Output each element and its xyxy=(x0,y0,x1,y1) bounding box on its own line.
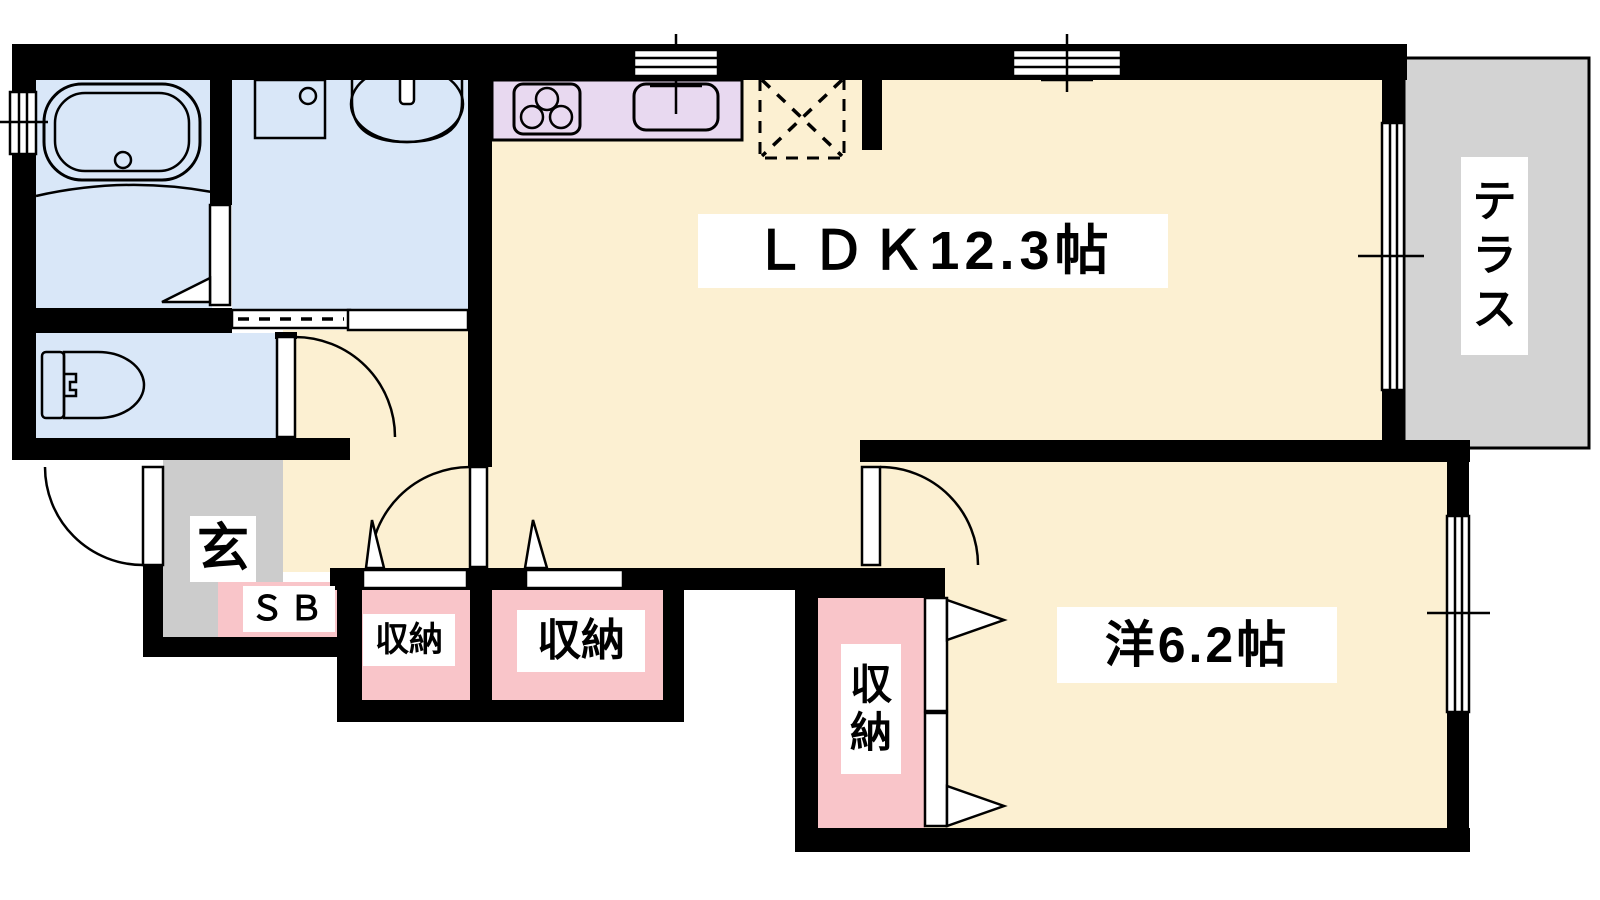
bedroom-door-leaf xyxy=(862,467,880,565)
floor-plan: ＬＤＫ12.3帖 洋6.2帖 テ ラ ス 玄 ＳＢ 収納 収納 収 納 xyxy=(0,0,1600,900)
room-label-ldk: ＬＤＫ12.3帖 xyxy=(698,214,1168,288)
entrance-door-leaf xyxy=(143,467,163,565)
room-washroom xyxy=(232,80,468,310)
floor-plan-drawing xyxy=(0,0,1600,900)
wall xyxy=(210,44,232,205)
storage-label-char: 収 xyxy=(850,664,892,706)
wall xyxy=(468,44,492,467)
wall xyxy=(337,700,684,722)
ldk-door-leaf xyxy=(470,467,487,567)
terrace-label-char: ラ xyxy=(1473,234,1517,278)
room-label-western: 洋6.2帖 xyxy=(1057,607,1337,683)
wall xyxy=(12,438,350,460)
closet-door-leaf xyxy=(363,570,467,588)
closet-door-leaf xyxy=(925,713,947,826)
wall xyxy=(12,308,232,333)
wall xyxy=(795,828,1470,852)
room-toilet xyxy=(36,333,277,438)
door-swing-icon xyxy=(45,467,143,565)
closet-door-leaf xyxy=(925,598,947,711)
room-label-storage-hall-large: 収納 xyxy=(517,610,645,672)
wall xyxy=(862,80,882,150)
wall xyxy=(143,637,362,657)
wall xyxy=(795,590,818,852)
room-label-terrace: テ ラ ス xyxy=(1461,157,1528,355)
terrace-label-char: ス xyxy=(1473,288,1517,332)
room-label-entrance: 玄 xyxy=(190,516,256,582)
room-bathroom xyxy=(36,80,212,308)
window-icon xyxy=(634,50,718,76)
room-label-storage-hall-small: 収納 xyxy=(363,614,455,666)
wall xyxy=(663,568,684,722)
wall xyxy=(470,568,492,722)
bath-door-leaf xyxy=(210,205,230,305)
sliding-door-icon xyxy=(348,310,468,330)
room-label-shoe-box: ＳＢ xyxy=(243,586,335,632)
wall xyxy=(860,440,1470,462)
wall xyxy=(337,568,362,722)
closet-door-leaf xyxy=(526,570,623,588)
terrace-label-char: テ xyxy=(1473,180,1517,224)
storage-label-char: 納 xyxy=(850,712,892,754)
toilet-door-leaf xyxy=(277,337,295,437)
room-label-storage-bedroom: 収 納 xyxy=(841,644,901,774)
